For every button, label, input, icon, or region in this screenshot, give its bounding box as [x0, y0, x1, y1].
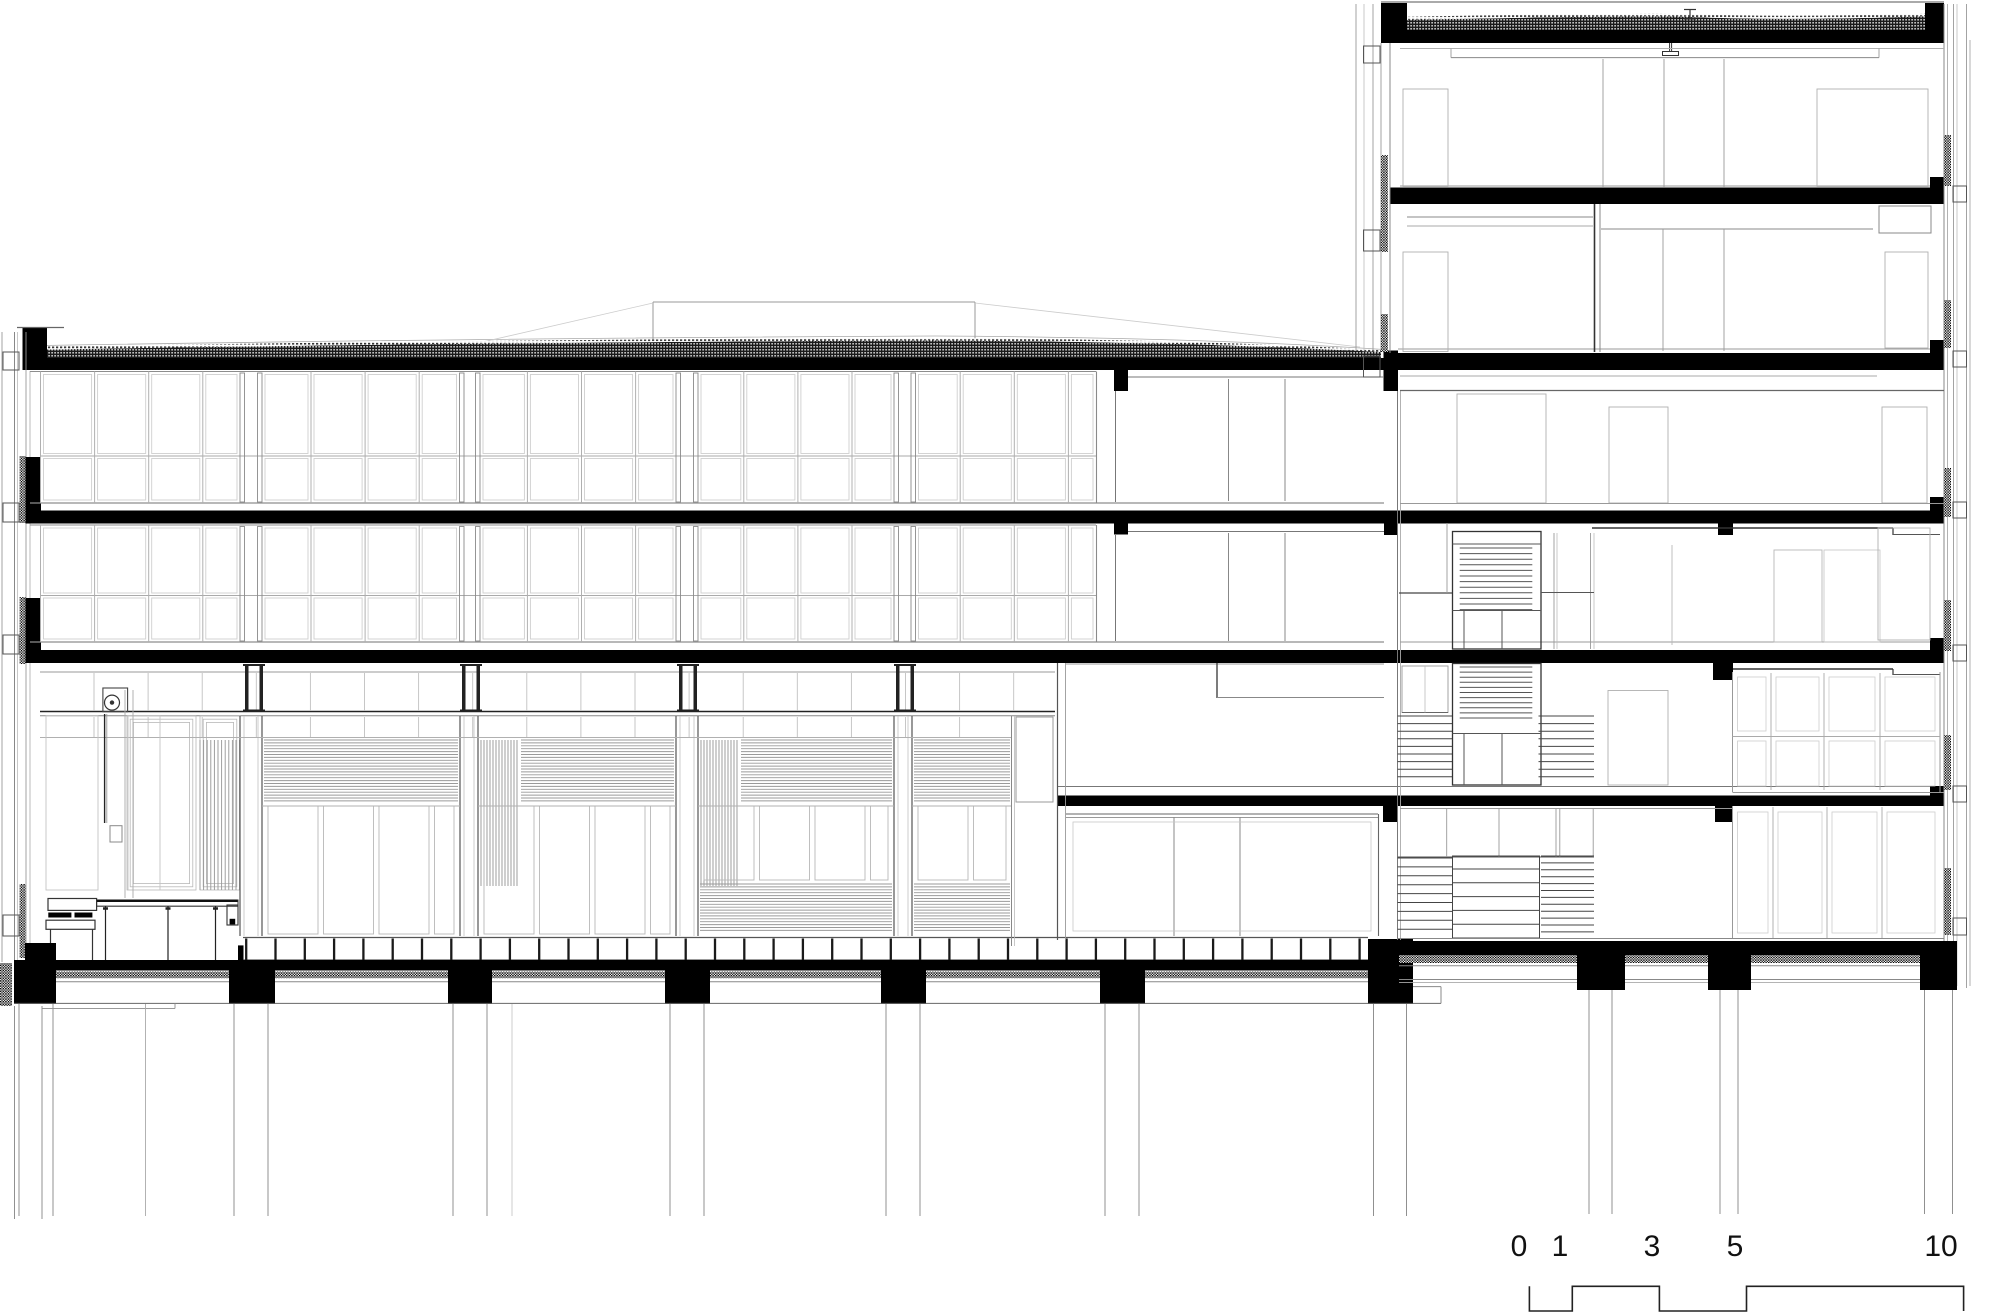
svg-text:3: 3 — [1644, 1230, 1661, 1263]
svg-text:1: 1 — [1552, 1230, 1569, 1263]
svg-text:0: 0 — [1511, 1230, 1528, 1263]
svg-text:10: 10 — [1924, 1230, 1957, 1263]
svg-text:5: 5 — [1727, 1230, 1744, 1263]
